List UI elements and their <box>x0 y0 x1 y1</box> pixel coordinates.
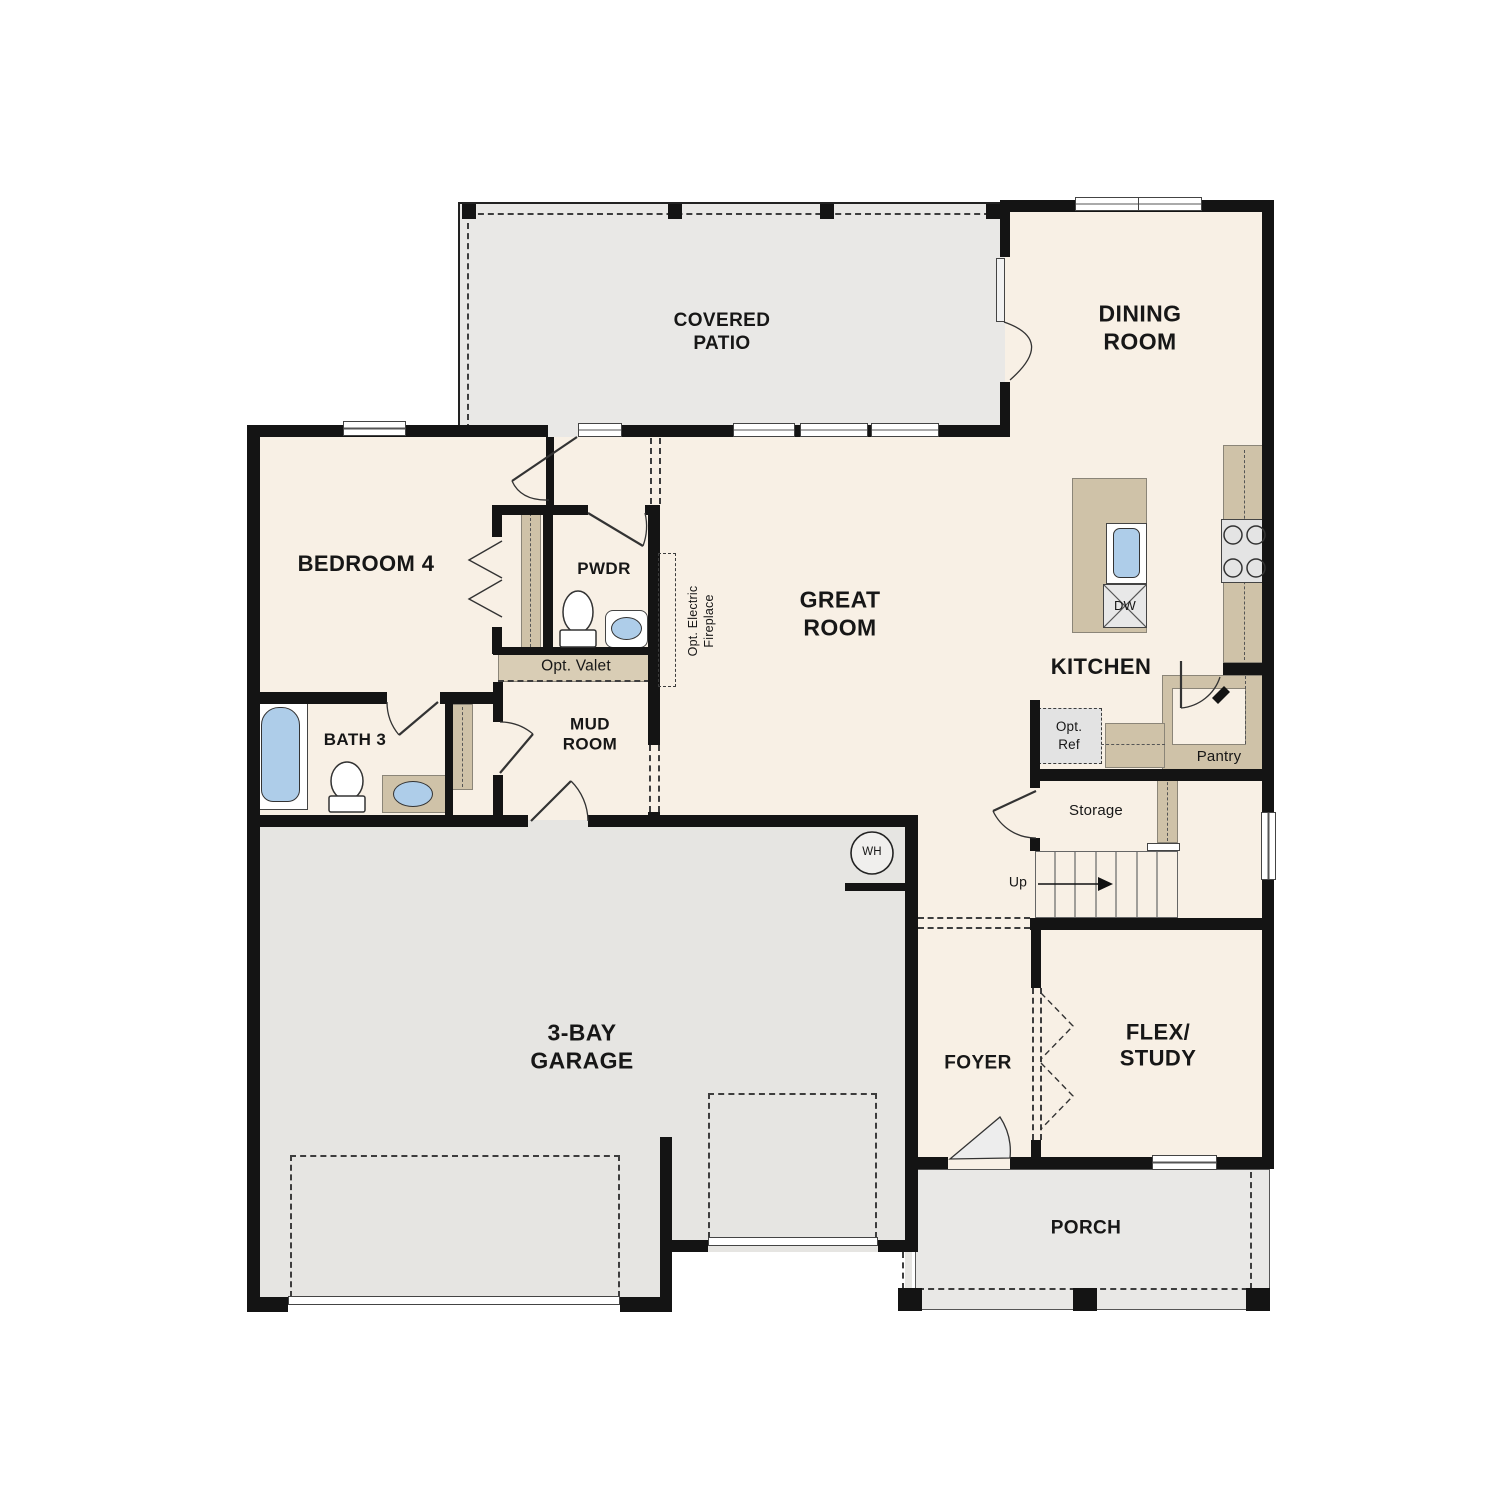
patio-hall-door-arc <box>512 481 549 500</box>
label-dishwasher: DW <box>1114 598 1136 614</box>
patio-hall-door-leaf <box>512 437 577 481</box>
powder-door-leaf <box>588 513 643 546</box>
label-foyer: FOYER <box>944 1053 1011 1076</box>
bath3-door-leaf <box>399 702 438 735</box>
label-opt-valet: Opt. Valet <box>541 658 611 677</box>
mudroom-door-leaf <box>500 734 533 773</box>
label-line: ROOM <box>1099 328 1182 356</box>
door-swings <box>387 322 1220 838</box>
garage-entry-door-arc <box>571 781 588 821</box>
label-line: MUD <box>563 715 617 735</box>
label-line: ROOM <box>563 735 617 755</box>
powder-toilet <box>560 591 596 647</box>
label-line: COVERED <box>674 310 771 333</box>
pantry-hall-door-arc <box>1181 677 1220 708</box>
label-bath-3: BATH 3 <box>324 730 387 750</box>
label-line: GREAT <box>800 586 881 614</box>
patio-dining-door-arc <box>1004 322 1032 380</box>
label-opt-ref: Opt. Ref <box>1056 718 1082 754</box>
label-garage: 3-BAY GARAGE <box>530 1019 633 1074</box>
bath3-door-arc <box>387 702 399 735</box>
front-door-leaf <box>950 1117 1010 1159</box>
label-flex-study: FLEX/ STUDY <box>1120 1020 1197 1073</box>
label-line: DINING <box>1099 300 1182 328</box>
storage-door-arc <box>993 811 1036 838</box>
plan-symbol-overlay <box>0 0 1500 1500</box>
label-line: Ref <box>1056 736 1082 754</box>
label-line: STUDY <box>1120 1046 1197 1072</box>
label-mud-room: MUD ROOM <box>563 715 617 756</box>
label-line: 3-BAY <box>530 1019 633 1047</box>
label-covered-patio: COVERED PATIO <box>674 310 771 356</box>
bedroom4-closet-doors <box>469 541 502 617</box>
label-great-room: GREAT ROOM <box>800 586 881 641</box>
bath3-toilet <box>329 762 365 812</box>
label-up: Up <box>1009 874 1027 891</box>
opt-french-doors <box>1041 993 1073 1129</box>
label-line: Opt. Electric <box>685 586 701 657</box>
floor-plan: COVERED PATIO DINING ROOM GREAT ROOM BED… <box>0 0 1500 1500</box>
label-line: FLEX/ <box>1120 1020 1197 1046</box>
label-kitchen: KITCHEN <box>1051 654 1152 680</box>
label-bedroom-4: BEDROOM 4 <box>298 551 435 577</box>
label-line: GARAGE <box>530 1047 633 1075</box>
label-pantry: Pantry <box>1197 748 1242 766</box>
cooktop-burners <box>1224 526 1265 577</box>
label-dining-room: DINING ROOM <box>1099 300 1182 355</box>
label-porch: PORCH <box>1051 1218 1122 1241</box>
label-opt-fireplace: Opt. Electric Fireplace <box>685 586 718 657</box>
label-line: Fireplace <box>701 586 717 657</box>
powder-door-arc <box>643 513 647 546</box>
label-water-heater: WH <box>862 846 882 860</box>
garage-entry-door-leaf <box>531 781 571 821</box>
label-storage: Storage <box>1069 802 1123 820</box>
label-line: ROOM <box>800 614 881 642</box>
label-line: Opt. <box>1056 718 1082 736</box>
label-line: PATIO <box>674 333 771 356</box>
label-powder: PWDR <box>577 559 631 579</box>
storage-door-leaf <box>993 791 1036 811</box>
mudroom-door-arc <box>500 722 533 734</box>
